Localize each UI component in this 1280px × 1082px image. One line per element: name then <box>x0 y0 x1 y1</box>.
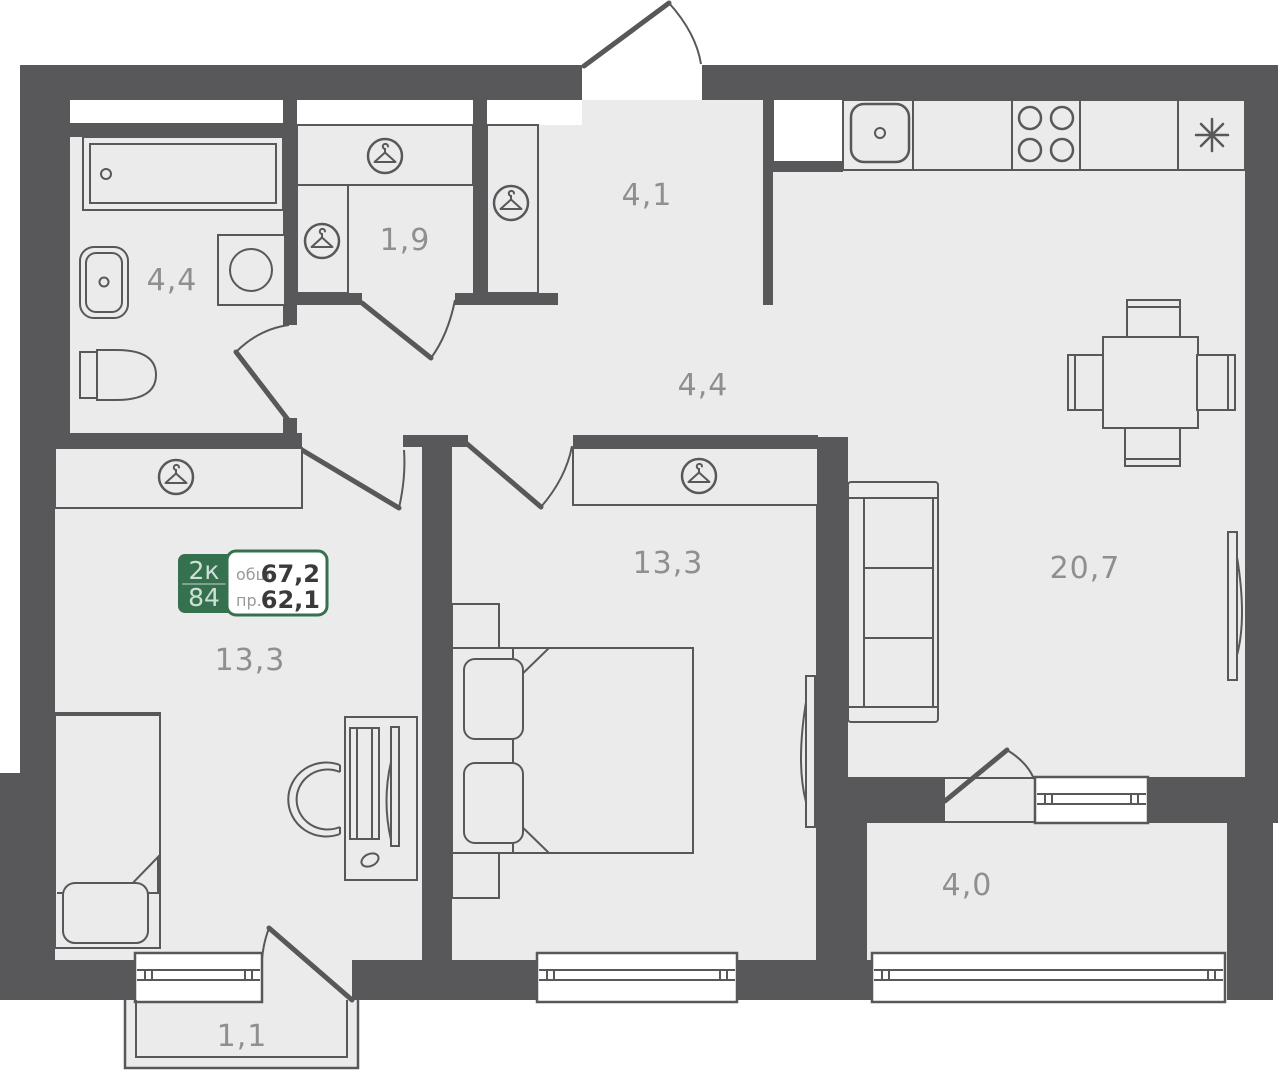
bathroom-sink <box>80 247 128 318</box>
badge-living-area-label: пр. <box>236 591 262 610</box>
room-area-label-balcony: 1,1 <box>217 1019 268 1054</box>
fridge-icon <box>1196 119 1228 151</box>
closet-bottom-wall-right <box>455 293 558 305</box>
window-loggia <box>872 953 1225 1002</box>
wardrobe-icon <box>159 460 193 494</box>
badge-type-label: 2к <box>188 556 219 585</box>
loggia-right-wall <box>1227 823 1273 1000</box>
bottom-wall-3 <box>737 960 872 1000</box>
room-area-label-corridor: 4,4 <box>678 368 729 403</box>
bathroom-top-wall <box>70 123 283 137</box>
room-area-label-room-left: 13,3 <box>215 643 286 678</box>
badge-living-area-value: 62,1 <box>261 586 320 614</box>
floor-plan-drawing: 4,4 1,9 4,1 4,4 13,3 13,3 20,7 4,0 1,1 2… <box>0 0 1280 1078</box>
floor-plan-page: 4,4 1,9 4,1 4,4 13,3 13,3 20,7 4,0 1,1 2… <box>0 0 1280 1078</box>
closet-bottom-wall-left <box>287 293 362 305</box>
kitchen-counter <box>843 100 1245 170</box>
single-bed <box>55 713 160 948</box>
loggia-doorway <box>945 779 1035 821</box>
dining-chair <box>1068 355 1103 410</box>
room-area-label-kitchen-living: 20,7 <box>1050 551 1121 586</box>
dining-chair <box>1197 355 1235 410</box>
closet-right-wall <box>473 97 487 293</box>
wardrobe-icon <box>494 186 528 220</box>
sofa <box>848 482 938 722</box>
pillow <box>63 883 148 943</box>
wardrobe-icon <box>305 224 339 258</box>
bathroom-wall-layer <box>55 97 70 440</box>
pillow <box>464 763 523 843</box>
room-area-label-entry-hall: 4,1 <box>622 178 673 213</box>
room-area-label-bathroom: 4,4 <box>147 263 198 298</box>
pillow <box>464 659 523 739</box>
window-bedroom <box>537 953 737 1002</box>
window-room-left <box>135 953 262 1002</box>
badge-plan-number: 84 <box>188 583 220 612</box>
wardrobe-icon <box>682 459 716 493</box>
window-living-to-loggia <box>1035 777 1148 823</box>
dining-table <box>1103 337 1198 428</box>
apartment-info-badge: 2к 84 общ. 67,2 пр. 62,1 <box>178 551 327 615</box>
center-wall-cap <box>403 435 468 447</box>
room-area-label-bedroom: 13,3 <box>633 546 704 581</box>
bottom-wall-1 <box>0 960 135 1000</box>
desk <box>345 717 417 880</box>
nightstand <box>452 853 499 898</box>
room-left-top-wall <box>55 433 302 448</box>
outer-wall-right <box>1245 65 1278 823</box>
center-divider-wall <box>422 447 452 960</box>
dining-chair <box>1127 300 1180 337</box>
bathtub <box>83 137 283 210</box>
bottom-wall-2 <box>352 960 537 1000</box>
outer-wall-left <box>20 65 55 775</box>
bedroom-top-wall <box>573 435 818 448</box>
toilet <box>80 350 156 400</box>
room-area-label-wardrobe-hall: 1,9 <box>380 223 431 258</box>
shaft-bottom-wall <box>763 162 843 172</box>
dining-chair <box>1125 428 1180 466</box>
washing-machine <box>218 235 285 305</box>
badge-total-area-value: 67,2 <box>261 560 320 588</box>
room-area-label-loggia: 4,0 <box>942 868 993 903</box>
kitchen-partition-wall <box>763 97 773 305</box>
nightstand <box>452 604 499 649</box>
entry-opening <box>582 65 702 100</box>
double-bed <box>452 648 693 853</box>
wardrobe-icon <box>368 139 402 173</box>
